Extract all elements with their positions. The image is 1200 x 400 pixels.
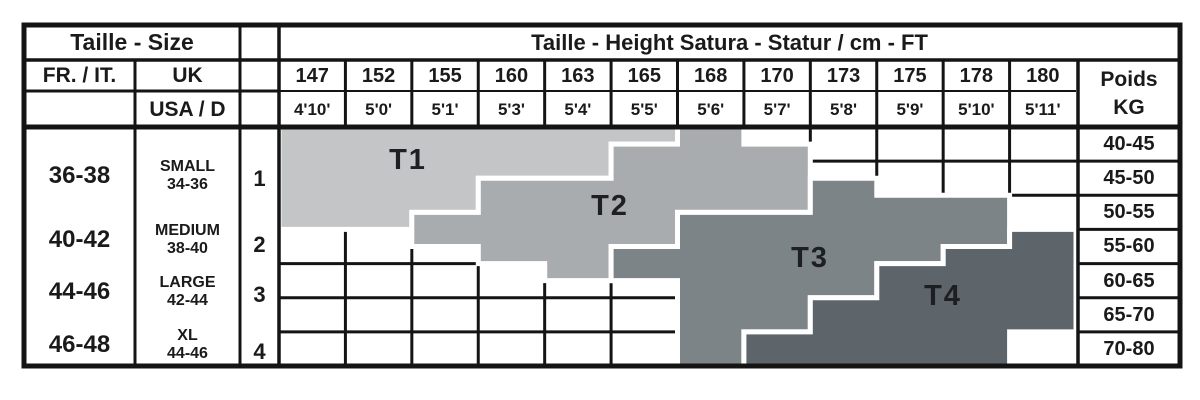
height-cm-cell: 170	[744, 60, 810, 91]
height-cm-cell: 147	[279, 60, 345, 91]
weight-cell: 60-65	[1078, 264, 1180, 298]
size-row-index: 1	[240, 161, 279, 197]
height-cm-cell: 175	[877, 60, 943, 91]
weight-cell: 45-50	[1078, 161, 1180, 195]
size-row-uk: SMALL34-36	[135, 156, 240, 196]
height-cm-cell: 155	[412, 60, 478, 91]
height-cm-cell: 165	[611, 60, 677, 91]
height-ft-cell: 5'10'	[943, 91, 1009, 127]
weight-cell: 40-45	[1078, 127, 1180, 161]
height-cm-cell: 163	[545, 60, 611, 91]
weight-cell: 55-60	[1078, 229, 1180, 263]
height-title: Taille - Height Satura - Statur / cm - F…	[279, 25, 1180, 60]
size-row-fr-it: 40-42	[24, 220, 135, 260]
size-row-uk: XL44-46	[135, 325, 240, 365]
header-poids: Poids KG	[1078, 60, 1180, 127]
size-row-uk-label: XL	[177, 328, 197, 344]
height-ft-cell: 5'11'	[1010, 91, 1076, 127]
height-cm-cell: 180	[1010, 60, 1076, 91]
size-row-uk: LARGE42-44	[135, 272, 240, 312]
height-cm-cell: 178	[943, 60, 1009, 91]
height-cm-cell: 160	[478, 60, 544, 91]
height-ft-cell: 5'9'	[877, 91, 943, 127]
header-uk: UK	[135, 60, 240, 91]
height-ft-cell: 4'10'	[279, 91, 345, 127]
height-cm-cell: 168	[678, 60, 744, 91]
poids-label: Poids	[1100, 69, 1157, 90]
size-row-index: 3	[240, 277, 279, 313]
height-cm-cell: 152	[345, 60, 411, 91]
size-row-uk-label: MEDIUM	[155, 223, 220, 239]
size-row-index: 4	[240, 334, 279, 370]
height-ft-cell: 5'0'	[345, 91, 411, 127]
header-fr-it: FR. / IT.	[24, 60, 135, 91]
height-ft-cell: 5'4'	[545, 91, 611, 127]
size-row-usa-range: 42-44	[167, 293, 208, 309]
kg-label: KG	[1113, 97, 1145, 118]
height-cm-cell: 173	[810, 60, 876, 91]
size-row-fr-it: 46-48	[24, 325, 135, 365]
size-row-index: 2	[240, 227, 279, 263]
size-row-usa-range: 44-46	[167, 346, 208, 362]
height-ft-cell: 5'8'	[810, 91, 876, 127]
header-usa-d: USA / D	[135, 91, 240, 127]
size-chart: Taille - Size Taille - Height Satura - S…	[0, 0, 1200, 400]
size-row-fr-it: 44-46	[24, 272, 135, 312]
height-ft-cell: 5'6'	[678, 91, 744, 127]
size-row-uk-label: SMALL	[160, 159, 215, 175]
corner-taille-size: Taille - Size	[24, 25, 240, 60]
weight-cell: 50-55	[1078, 195, 1180, 229]
size-row-usa-range: 34-36	[167, 177, 208, 193]
size-row-usa-range: 38-40	[167, 241, 208, 257]
size-row-uk: MEDIUM38-40	[135, 220, 240, 260]
weight-cell: 65-70	[1078, 298, 1180, 332]
height-ft-cell: 5'3'	[478, 91, 544, 127]
height-ft-cell: 5'7'	[744, 91, 810, 127]
weight-cell: 70-80	[1078, 332, 1180, 366]
height-ft-cell: 5'5'	[611, 91, 677, 127]
size-row-uk-label: LARGE	[160, 275, 216, 291]
size-row-fr-it: 36-38	[24, 156, 135, 196]
height-ft-cell: 5'1'	[412, 91, 478, 127]
